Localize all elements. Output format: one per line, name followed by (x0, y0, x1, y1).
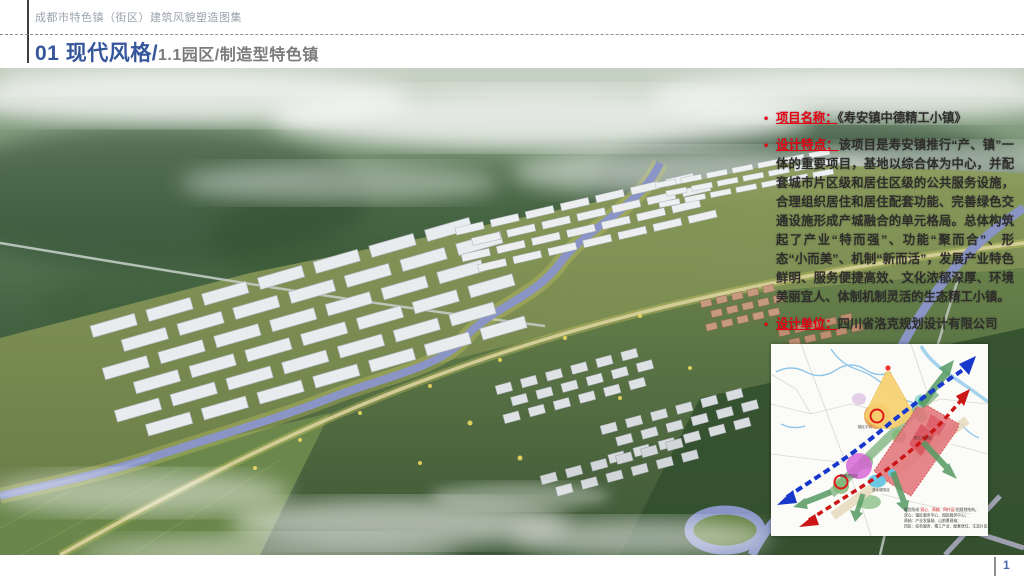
map-zone-label: 镇区中心 (858, 424, 873, 429)
slide-page: 成都市特色镇（街区）建筑风貌塑造图集 01 现代风格/1.1园区/制造型特色镇 (0, 0, 1024, 576)
footer-divider-bar (994, 557, 996, 576)
design-firm-value: 四川省洛克规划设计有限公司 (838, 317, 998, 331)
project-name-item: • 项目名称：《寿安镇中德精工小镇》 (776, 109, 1014, 128)
project-name-label: 项目名称： (776, 111, 838, 125)
design-features-item: • 设计特点：该项目是寿安镇推行“产、镇”一体的重要项目，基地以综合体为中心，并… (776, 136, 1014, 307)
svg-text:规划形成“双心、两轴、四片区”的规划结构。: 规划形成“双心、两轴、四片区”的规划结构。 (904, 507, 979, 512)
map-legend-line: 双心：镇区服务中心、园区服务中心； (904, 513, 969, 518)
design-features-label: 设计特点： (776, 138, 839, 152)
page-title: 01 现代风格/1.1园区/制造型特色镇 (35, 37, 319, 67)
header-vertical-rule (27, 0, 29, 63)
map-legend-line: 两轴：产业发展轴、山前景观轴； (904, 518, 961, 523)
map-zone-label: 精工产业区 (914, 435, 932, 440)
catalog-title: 成都市特色镇（街区）建筑风貌塑造图集 (35, 9, 242, 25)
map-zone-label: 配套居住区 (840, 473, 858, 478)
project-info-panel: • 项目名称：《寿安镇中德精工小镇》 • 设计特点：该项目是寿安镇推行“产、镇”… (776, 109, 1014, 342)
design-firm-item: • 设计单位：四川省洛克规划设计有限公司 (776, 315, 1014, 334)
header-dashed-divider (0, 34, 1024, 35)
page-number: 1 (1003, 558, 1010, 572)
design-features-text: 该项目是寿安镇推行“产、镇”一体的重要项目，基地以综合体为中心，并配套城市片区级… (776, 138, 1014, 304)
bullet-icon: • (764, 136, 768, 155)
bullet-icon: • (764, 315, 768, 334)
map-zone-label: 滨水服务区 (872, 487, 890, 492)
design-firm-label: 设计单位： (776, 317, 838, 331)
project-name-value: 《寿安镇中德精工小镇》 (838, 111, 967, 125)
page-title-sub: 1.1园区/制造型特色镇 (158, 47, 319, 64)
page-title-main: 01 现代风格/ (35, 42, 158, 65)
map-legend-line: 四区：综合服务、精工产业、配套居住、生态片区。 (904, 524, 988, 529)
bullet-icon: • (764, 109, 768, 128)
planning-structure-map: 镇区中心 精工产业区 配套居住区 滨水服务区 规划形成“双心、两轴、四片区”的规… (771, 344, 988, 536)
